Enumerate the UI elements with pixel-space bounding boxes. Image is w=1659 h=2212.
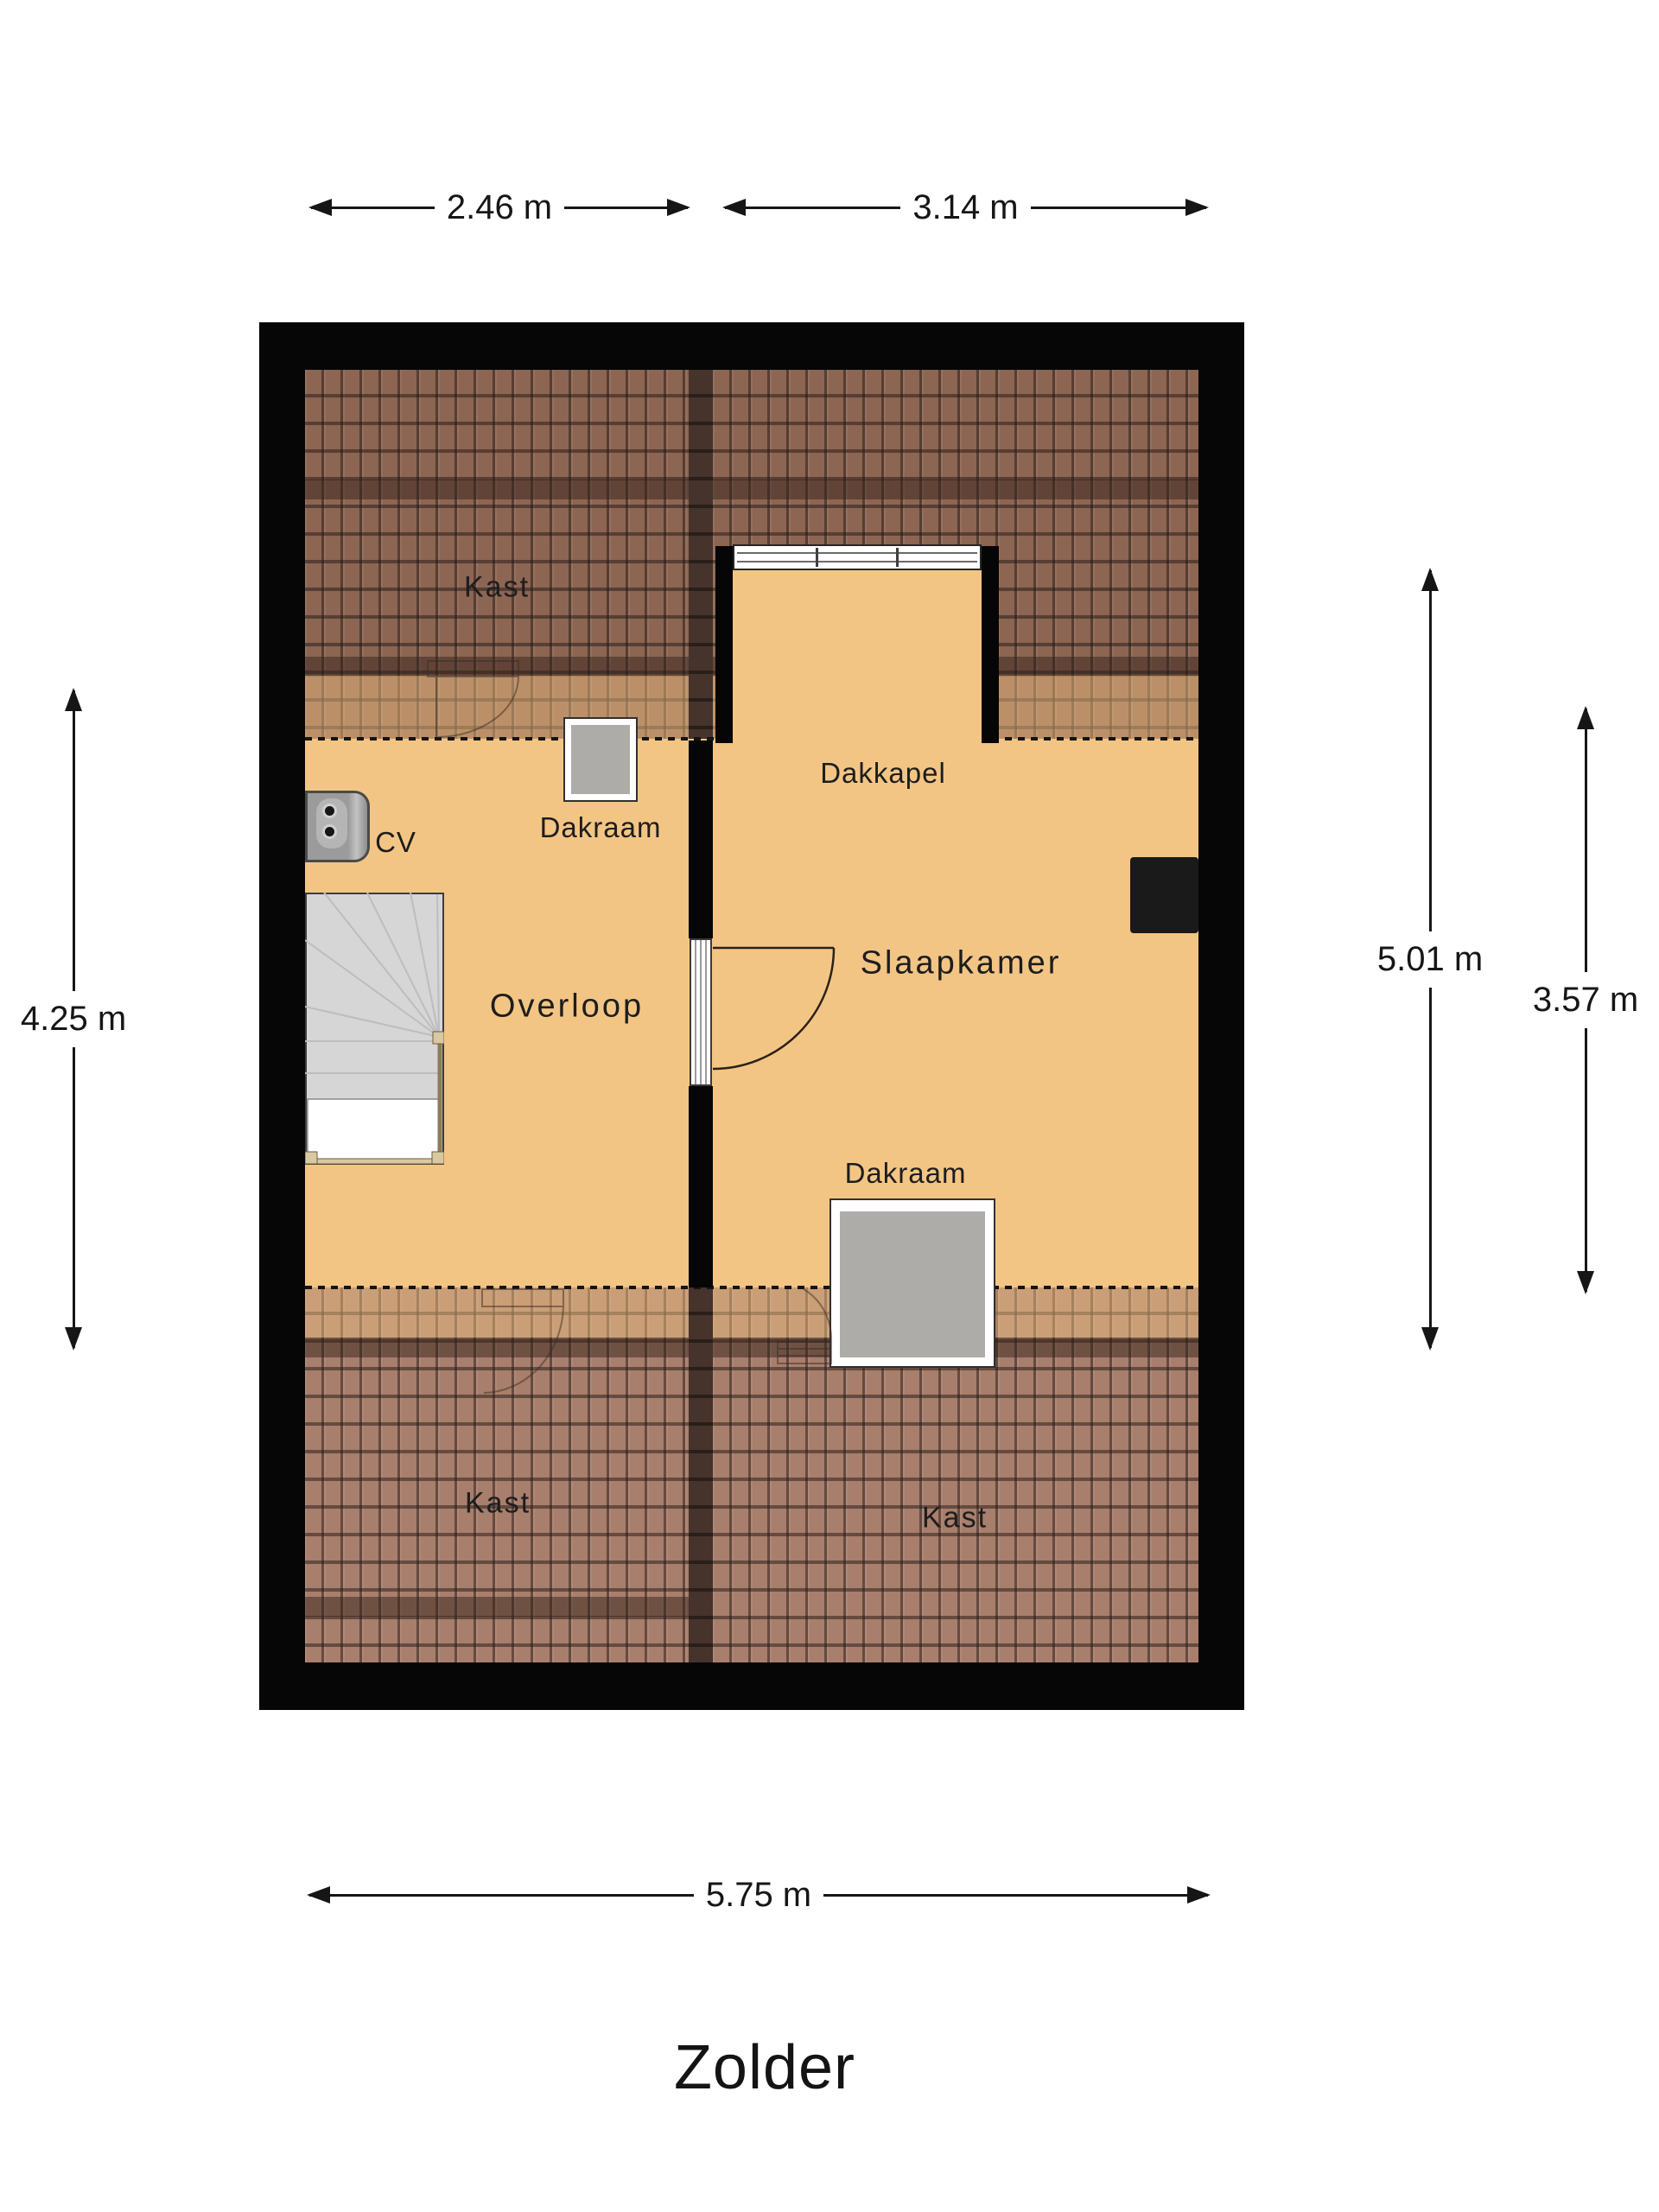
room-label-kast-bottom-left: Kast xyxy=(465,1487,531,1521)
window-mullion xyxy=(896,548,899,567)
roof-ridge-divider-top xyxy=(689,370,713,739)
window-glazing-line xyxy=(737,552,977,554)
feature-label-cv: CV xyxy=(375,826,416,859)
roof-eave-strip xyxy=(305,1287,689,1338)
dimension-label: 4.25 m xyxy=(14,991,133,1047)
plan-interior: Kast Dakraam CV Overloop Slaapkamer Dakk… xyxy=(305,370,1198,1662)
roofline-dashed-bottom xyxy=(305,1286,1198,1289)
window-glass xyxy=(840,1211,985,1357)
dimension-left: 4.25 m xyxy=(60,689,86,1350)
feature-label-dakraam-slaapkamer: Dakraam xyxy=(845,1157,967,1190)
cv-knob xyxy=(322,804,337,818)
window-glazing-line xyxy=(737,561,977,563)
roof-ridge-divider-bottom xyxy=(689,1287,713,1662)
cv-knob xyxy=(322,824,337,839)
feature-label-dakraam-overloop: Dakraam xyxy=(540,811,662,844)
cv-boiler xyxy=(305,791,370,862)
room-label-kast-top: Kast xyxy=(464,571,530,605)
dakkapel-floor xyxy=(733,569,982,741)
dimension-label: 3.14 m xyxy=(900,188,1030,227)
roof-shadow-band xyxy=(305,480,689,499)
room-label-overloop: Overloop xyxy=(490,988,644,1026)
dakraam-window-slaapkamer xyxy=(829,1198,995,1368)
room-label-kast-bottom-right: Kast xyxy=(922,1502,988,1535)
room-label-dakkapel: Dakkapel xyxy=(820,757,946,790)
dimension-label: 5.01 m xyxy=(1370,931,1490,988)
dakkapel-post-right xyxy=(982,546,999,743)
dimension-label: 5.75 m xyxy=(694,1876,823,1915)
dimension-label: 2.46 m xyxy=(435,188,564,227)
floorplan-canvas: 2.46 m 3.14 m 4.25 m 5.01 m 3.57 m 5.75 … xyxy=(0,0,1659,2212)
roof-shadow-band xyxy=(713,480,1198,499)
window-glass xyxy=(571,725,630,794)
roof-area-bottom-left xyxy=(305,1287,689,1662)
roof-shadow-band xyxy=(305,657,689,677)
roof-area-top-left xyxy=(305,370,689,739)
roof-shadow-band xyxy=(305,1597,689,1617)
room-label-slaapkamer: Slaapkamer xyxy=(861,945,1062,982)
dimension-top-left: 2.46 m xyxy=(309,194,690,220)
dakkapel-window xyxy=(733,544,982,570)
plan-outer-wall: Kast Dakraam CV Overloop Slaapkamer Dakk… xyxy=(259,322,1244,1710)
interior-wall-upper xyxy=(689,741,713,938)
dimension-right-inner: 3.57 m xyxy=(1573,707,1599,1294)
dakraam-window-overloop xyxy=(563,717,638,802)
door-frame xyxy=(690,938,712,1086)
roof-shadow-band xyxy=(305,1338,689,1357)
window-mullion xyxy=(816,548,818,567)
chimney-block xyxy=(1130,857,1198,933)
dakkapel-post-left xyxy=(715,546,733,743)
dimension-bottom: 5.75 m xyxy=(308,1882,1210,1908)
dimension-top-right: 3.14 m xyxy=(723,194,1208,220)
dimension-right-outer: 5.01 m xyxy=(1417,569,1443,1350)
dimension-label: 3.57 m xyxy=(1526,972,1645,1028)
staircase xyxy=(305,893,444,1165)
floor-title: Zolder xyxy=(674,2032,855,2103)
interior-wall-lower xyxy=(689,1086,713,1287)
